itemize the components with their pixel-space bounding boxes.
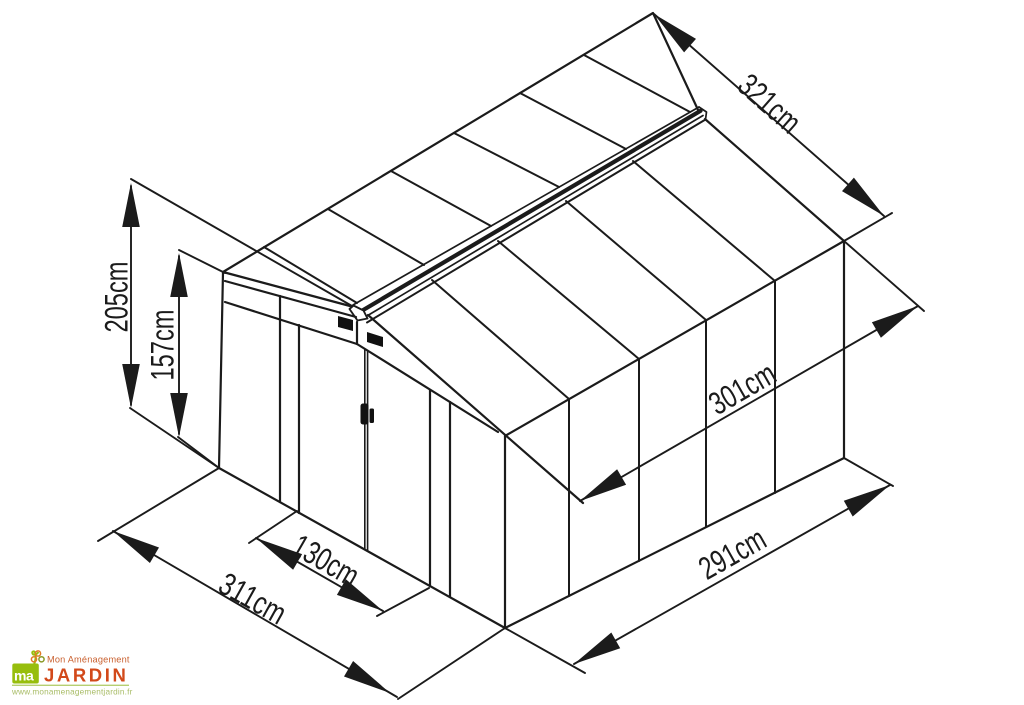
svg-text:311cm: 311cm	[213, 565, 293, 631]
svg-text:301cm: 301cm	[703, 355, 782, 422]
svg-text:www.monamenagementjardin.fr: www.monamenagementjardin.fr	[11, 688, 133, 697]
svg-text:321cm: 321cm	[731, 66, 808, 140]
svg-text:Mon Aménagement: Mon Aménagement	[47, 655, 130, 665]
svg-text:JARDIN: JARDIN	[44, 665, 128, 686]
svg-text:205cm: 205cm	[99, 262, 135, 333]
svg-text:157cm: 157cm	[145, 310, 181, 381]
svg-text:130cm: 130cm	[286, 527, 365, 594]
svg-text:291cm: 291cm	[692, 520, 772, 586]
svg-text:ma: ma	[14, 668, 34, 684]
